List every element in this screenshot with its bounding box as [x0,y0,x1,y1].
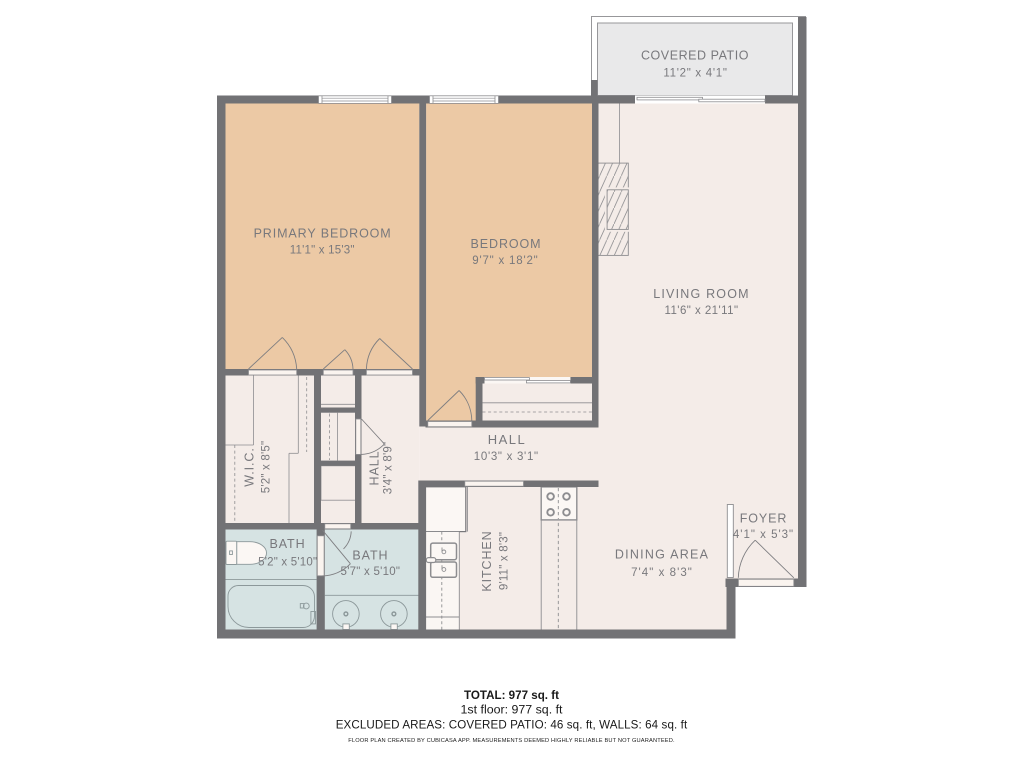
svg-text:9'7" x 18'2": 9'7" x 18'2" [472,255,538,267]
svg-text:5'2" x 8'5": 5'2" x 8'5" [261,441,273,493]
svg-text:5'7" x 5'10": 5'7" x 5'10" [341,566,401,578]
svg-text:9'11" x 8'3": 9'11" x 8'3" [499,532,511,590]
svg-text:1st floor: 977 sq. ft: 1st floor: 977 sq. ft [461,703,563,717]
svg-text:11'6" x 21'11": 11'6" x 21'11" [664,305,738,317]
svg-text:3'4" x 8'9": 3'4" x 8'9" [383,442,395,494]
svg-text:LIVING ROOM: LIVING ROOM [653,287,750,301]
svg-text:W.I.C.: W.I.C. [243,447,257,486]
svg-text:HALL: HALL [488,432,527,447]
svg-text:HALL: HALL [368,451,382,486]
svg-text:EXCLUDED AREAS: COVERED PATIO:: EXCLUDED AREAS: COVERED PATIO: 46 sq. ft… [336,718,688,731]
svg-text:7'4" x 8'3": 7'4" x 8'3" [631,567,693,579]
svg-text:FLOOR PLAN CREATED BY CUBICASA: FLOOR PLAN CREATED BY CUBICASA APP. MEAS… [348,738,675,744]
svg-text:11'2" x 4'1": 11'2" x 4'1" [663,68,727,80]
svg-text:BATH: BATH [352,548,388,562]
svg-text:BATH: BATH [269,537,305,551]
svg-text:COVERED PATIO: COVERED PATIO [641,49,749,63]
svg-text:DINING AREA: DINING AREA [615,548,709,562]
svg-text:5'2" x 5'10": 5'2" x 5'10" [258,556,317,568]
svg-text:4'1" x 5'3": 4'1" x 5'3" [733,529,794,541]
svg-text:FOYER: FOYER [740,512,788,526]
svg-text:11'1" x 15'3": 11'1" x 15'3" [290,245,355,257]
svg-text:KITCHEN: KITCHEN [480,530,494,591]
svg-text:BEDROOM: BEDROOM [471,237,542,251]
svg-text:PRIMARY BEDROOM: PRIMARY BEDROOM [254,227,392,241]
svg-text:TOTAL: 977 sq. ft: TOTAL: 977 sq. ft [464,689,559,702]
svg-text:10'3" x 3'1": 10'3" x 3'1" [474,451,539,463]
